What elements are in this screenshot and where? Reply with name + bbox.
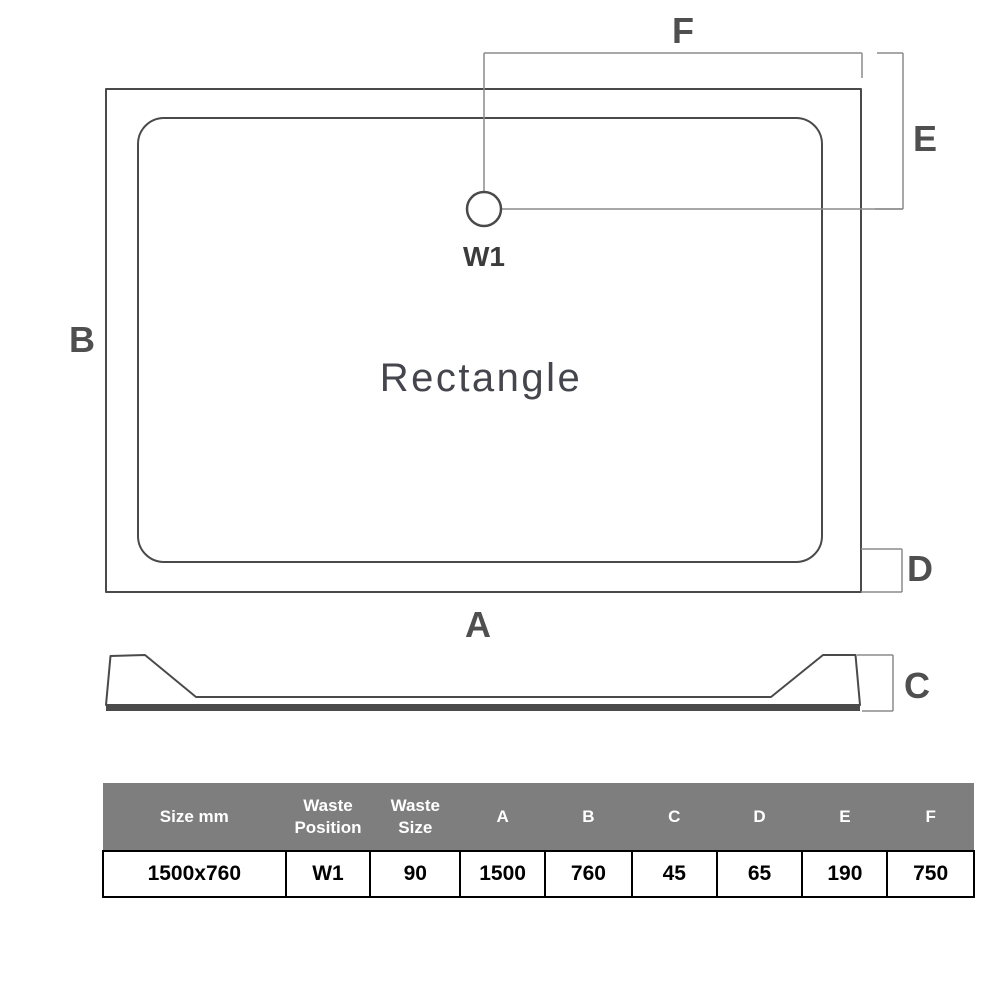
cell-waste-position: W1: [286, 851, 371, 897]
cell-f: 750: [887, 851, 974, 897]
header-waste-size: Waste Size: [370, 783, 460, 851]
header-d: D: [717, 783, 803, 851]
dim-d-bracket: [861, 549, 902, 592]
spec-table: Size mm Waste Position Waste Size A B C …: [102, 783, 975, 898]
cell-size-mm: 1500x760: [103, 851, 286, 897]
dim-label-a: A: [465, 604, 491, 645]
header-a: A: [460, 783, 545, 851]
spec-table-data-row: 1500x760 W1 90 1500 760 45 65 190 750: [103, 851, 974, 897]
dim-label-c: C: [904, 665, 930, 706]
profile-outline: [106, 655, 860, 705]
profile-base-strip: [106, 705, 860, 711]
dim-c-bracket: [857, 655, 893, 711]
header-waste-position: Waste Position: [286, 783, 371, 851]
cell-a: 1500: [460, 851, 545, 897]
tray-diagram: F E B D A W1 Rectangle C: [0, 0, 1001, 775]
header-size-mm: Size mm: [103, 783, 286, 851]
shower-tray-spec-sheet: F E B D A W1 Rectangle C: [0, 0, 1001, 1001]
waste-position-label: W1: [463, 241, 505, 272]
header-c: C: [632, 783, 717, 851]
tray-plan-view: F E B D A W1 Rectangle: [69, 10, 937, 645]
dim-f-bracket: [484, 53, 862, 78]
shape-name-label: Rectangle: [380, 356, 583, 400]
header-f: F: [887, 783, 974, 851]
cell-waste-size: 90: [370, 851, 460, 897]
dim-label-f: F: [672, 10, 694, 51]
cell-d: 65: [717, 851, 803, 897]
dim-label-e: E: [913, 118, 937, 159]
waste-circle: [467, 192, 501, 226]
cell-c: 45: [632, 851, 717, 897]
dim-label-d: D: [907, 548, 933, 589]
header-e: E: [802, 783, 887, 851]
dim-e-bracket: [875, 53, 903, 209]
cell-e: 190: [802, 851, 887, 897]
dim-label-b: B: [69, 319, 95, 360]
cell-b: 760: [545, 851, 632, 897]
header-b: B: [545, 783, 632, 851]
spec-table-header-row: Size mm Waste Position Waste Size A B C …: [103, 783, 974, 851]
tray-side-profile: C: [106, 655, 930, 711]
